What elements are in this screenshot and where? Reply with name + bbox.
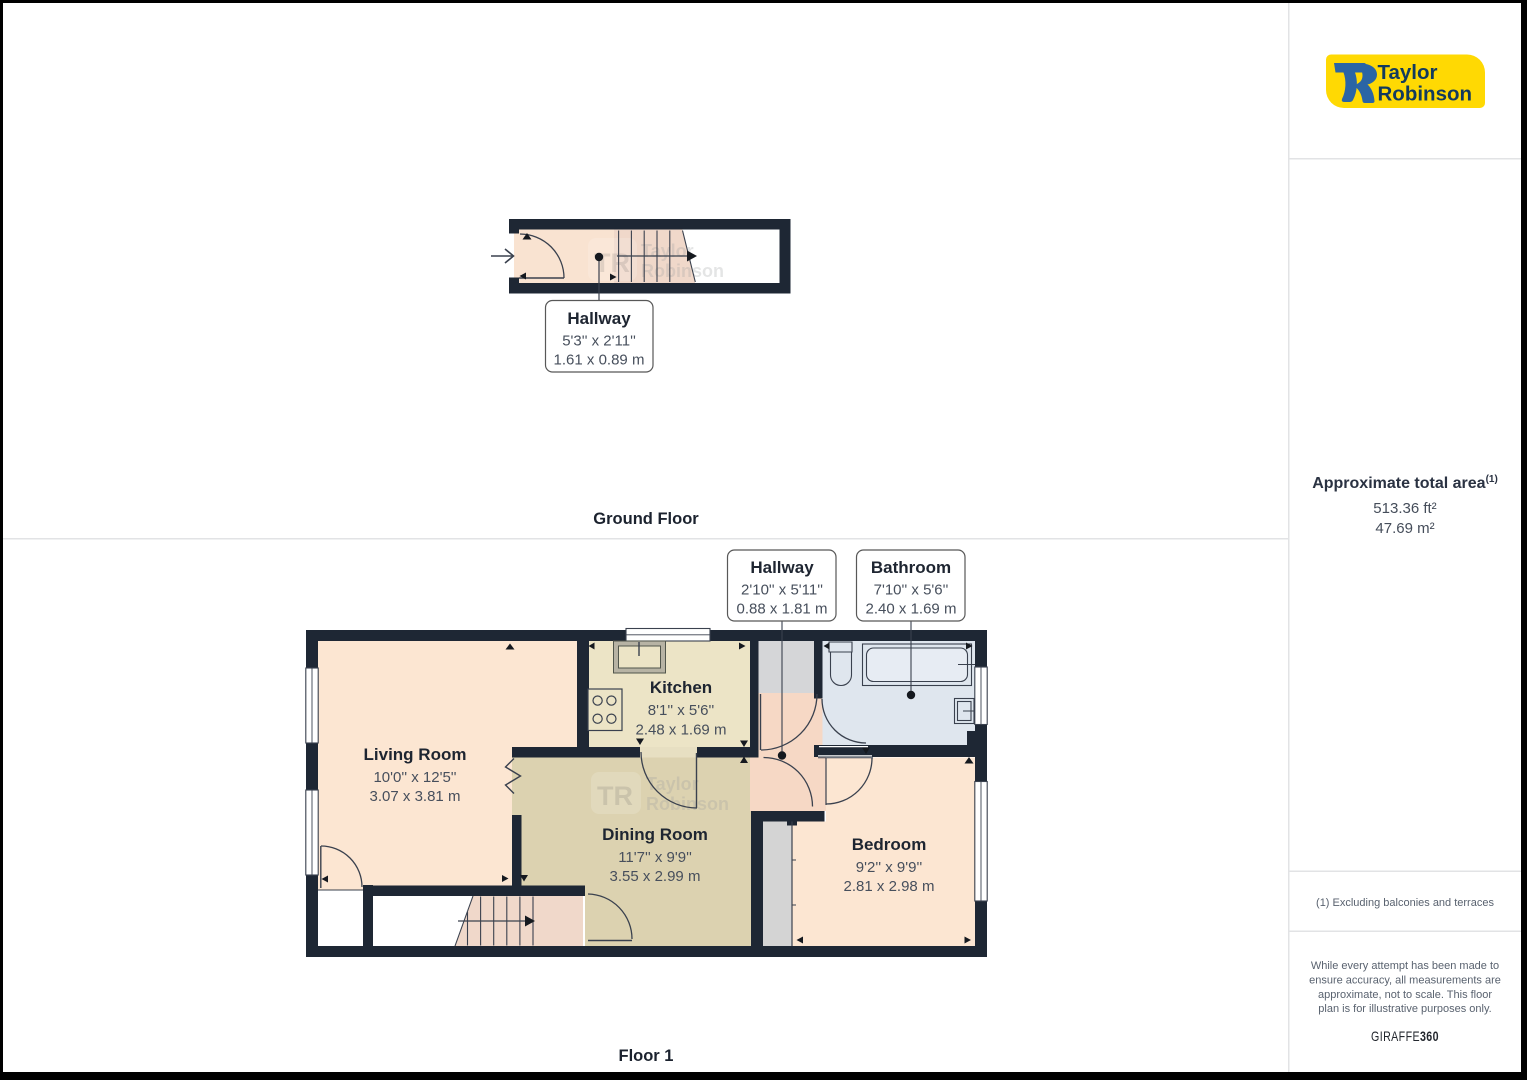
svg-text:Ground Floor: Ground Floor bbox=[593, 510, 699, 528]
svg-text:47.69 m²: 47.69 m² bbox=[1375, 520, 1434, 537]
svg-text:1.61 x 0.89 m: 1.61 x 0.89 m bbox=[554, 352, 645, 369]
svg-text:ensure accuracy, all measureme: ensure accuracy, all measurements are bbox=[1309, 975, 1501, 987]
svg-text:GIRAFFE360: GIRAFFE360 bbox=[1371, 1029, 1439, 1045]
svg-text:5'3'' x 2'11'': 5'3'' x 2'11'' bbox=[562, 333, 636, 350]
svg-text:9'2'' x 9'9'': 9'2'' x 9'9'' bbox=[856, 859, 923, 876]
svg-text:Approximate total area(1): Approximate total area(1) bbox=[1312, 474, 1498, 492]
svg-text:Taylor: Taylor bbox=[1378, 61, 1438, 84]
svg-text:3.55 x 2.99 m: 3.55 x 2.99 m bbox=[610, 868, 701, 885]
svg-text:513.36 ft²: 513.36 ft² bbox=[1373, 500, 1436, 517]
svg-text:Dining Room: Dining Room bbox=[602, 825, 708, 844]
svg-text:Floor 1: Floor 1 bbox=[618, 1047, 673, 1065]
svg-text:Robinson: Robinson bbox=[641, 261, 724, 281]
svg-text:7'10'' x 5'6'': 7'10'' x 5'6'' bbox=[874, 582, 949, 599]
svg-text:0.88 x 1.81 m: 0.88 x 1.81 m bbox=[737, 601, 828, 618]
svg-text:11'7'' x 9'9'': 11'7'' x 9'9'' bbox=[618, 849, 692, 866]
svg-text:While every attempt has been m: While every attempt has been made to bbox=[1311, 960, 1499, 972]
svg-text:8'1'' x 5'6'': 8'1'' x 5'6'' bbox=[648, 702, 715, 719]
svg-text:Bathroom: Bathroom bbox=[871, 558, 951, 577]
svg-text:Hallway: Hallway bbox=[567, 309, 631, 328]
svg-text:Robinson: Robinson bbox=[1378, 83, 1473, 106]
svg-text:Robinson: Robinson bbox=[646, 794, 729, 814]
svg-text:Bedroom: Bedroom bbox=[852, 835, 927, 854]
svg-text:Living Room: Living Room bbox=[364, 745, 467, 764]
svg-text:2.48 x 1.69 m: 2.48 x 1.69 m bbox=[636, 722, 727, 739]
svg-text:Taylor: Taylor bbox=[646, 774, 699, 794]
svg-text:TR: TR bbox=[597, 781, 633, 811]
svg-text:2'10'' x 5'11'': 2'10'' x 5'11'' bbox=[741, 582, 823, 599]
svg-text:2.81 x 2.98 m: 2.81 x 2.98 m bbox=[844, 878, 935, 895]
svg-text:approximate, not to scale. Thi: approximate, not to scale. This floor bbox=[1318, 989, 1492, 1001]
svg-text:(1) Excluding balconies and te: (1) Excluding balconies and terraces bbox=[1316, 897, 1494, 909]
svg-text:Kitchen: Kitchen bbox=[650, 678, 712, 697]
svg-text:plan is for illustrative purpo: plan is for illustrative purposes only. bbox=[1318, 1003, 1491, 1015]
svg-text:10'0'' x 12'5'': 10'0'' x 12'5'' bbox=[373, 769, 456, 786]
svg-text:3.07 x 3.81 m: 3.07 x 3.81 m bbox=[370, 788, 461, 805]
svg-text:Hallway: Hallway bbox=[750, 558, 814, 577]
svg-text:2.40 x 1.69 m: 2.40 x 1.69 m bbox=[866, 601, 957, 618]
